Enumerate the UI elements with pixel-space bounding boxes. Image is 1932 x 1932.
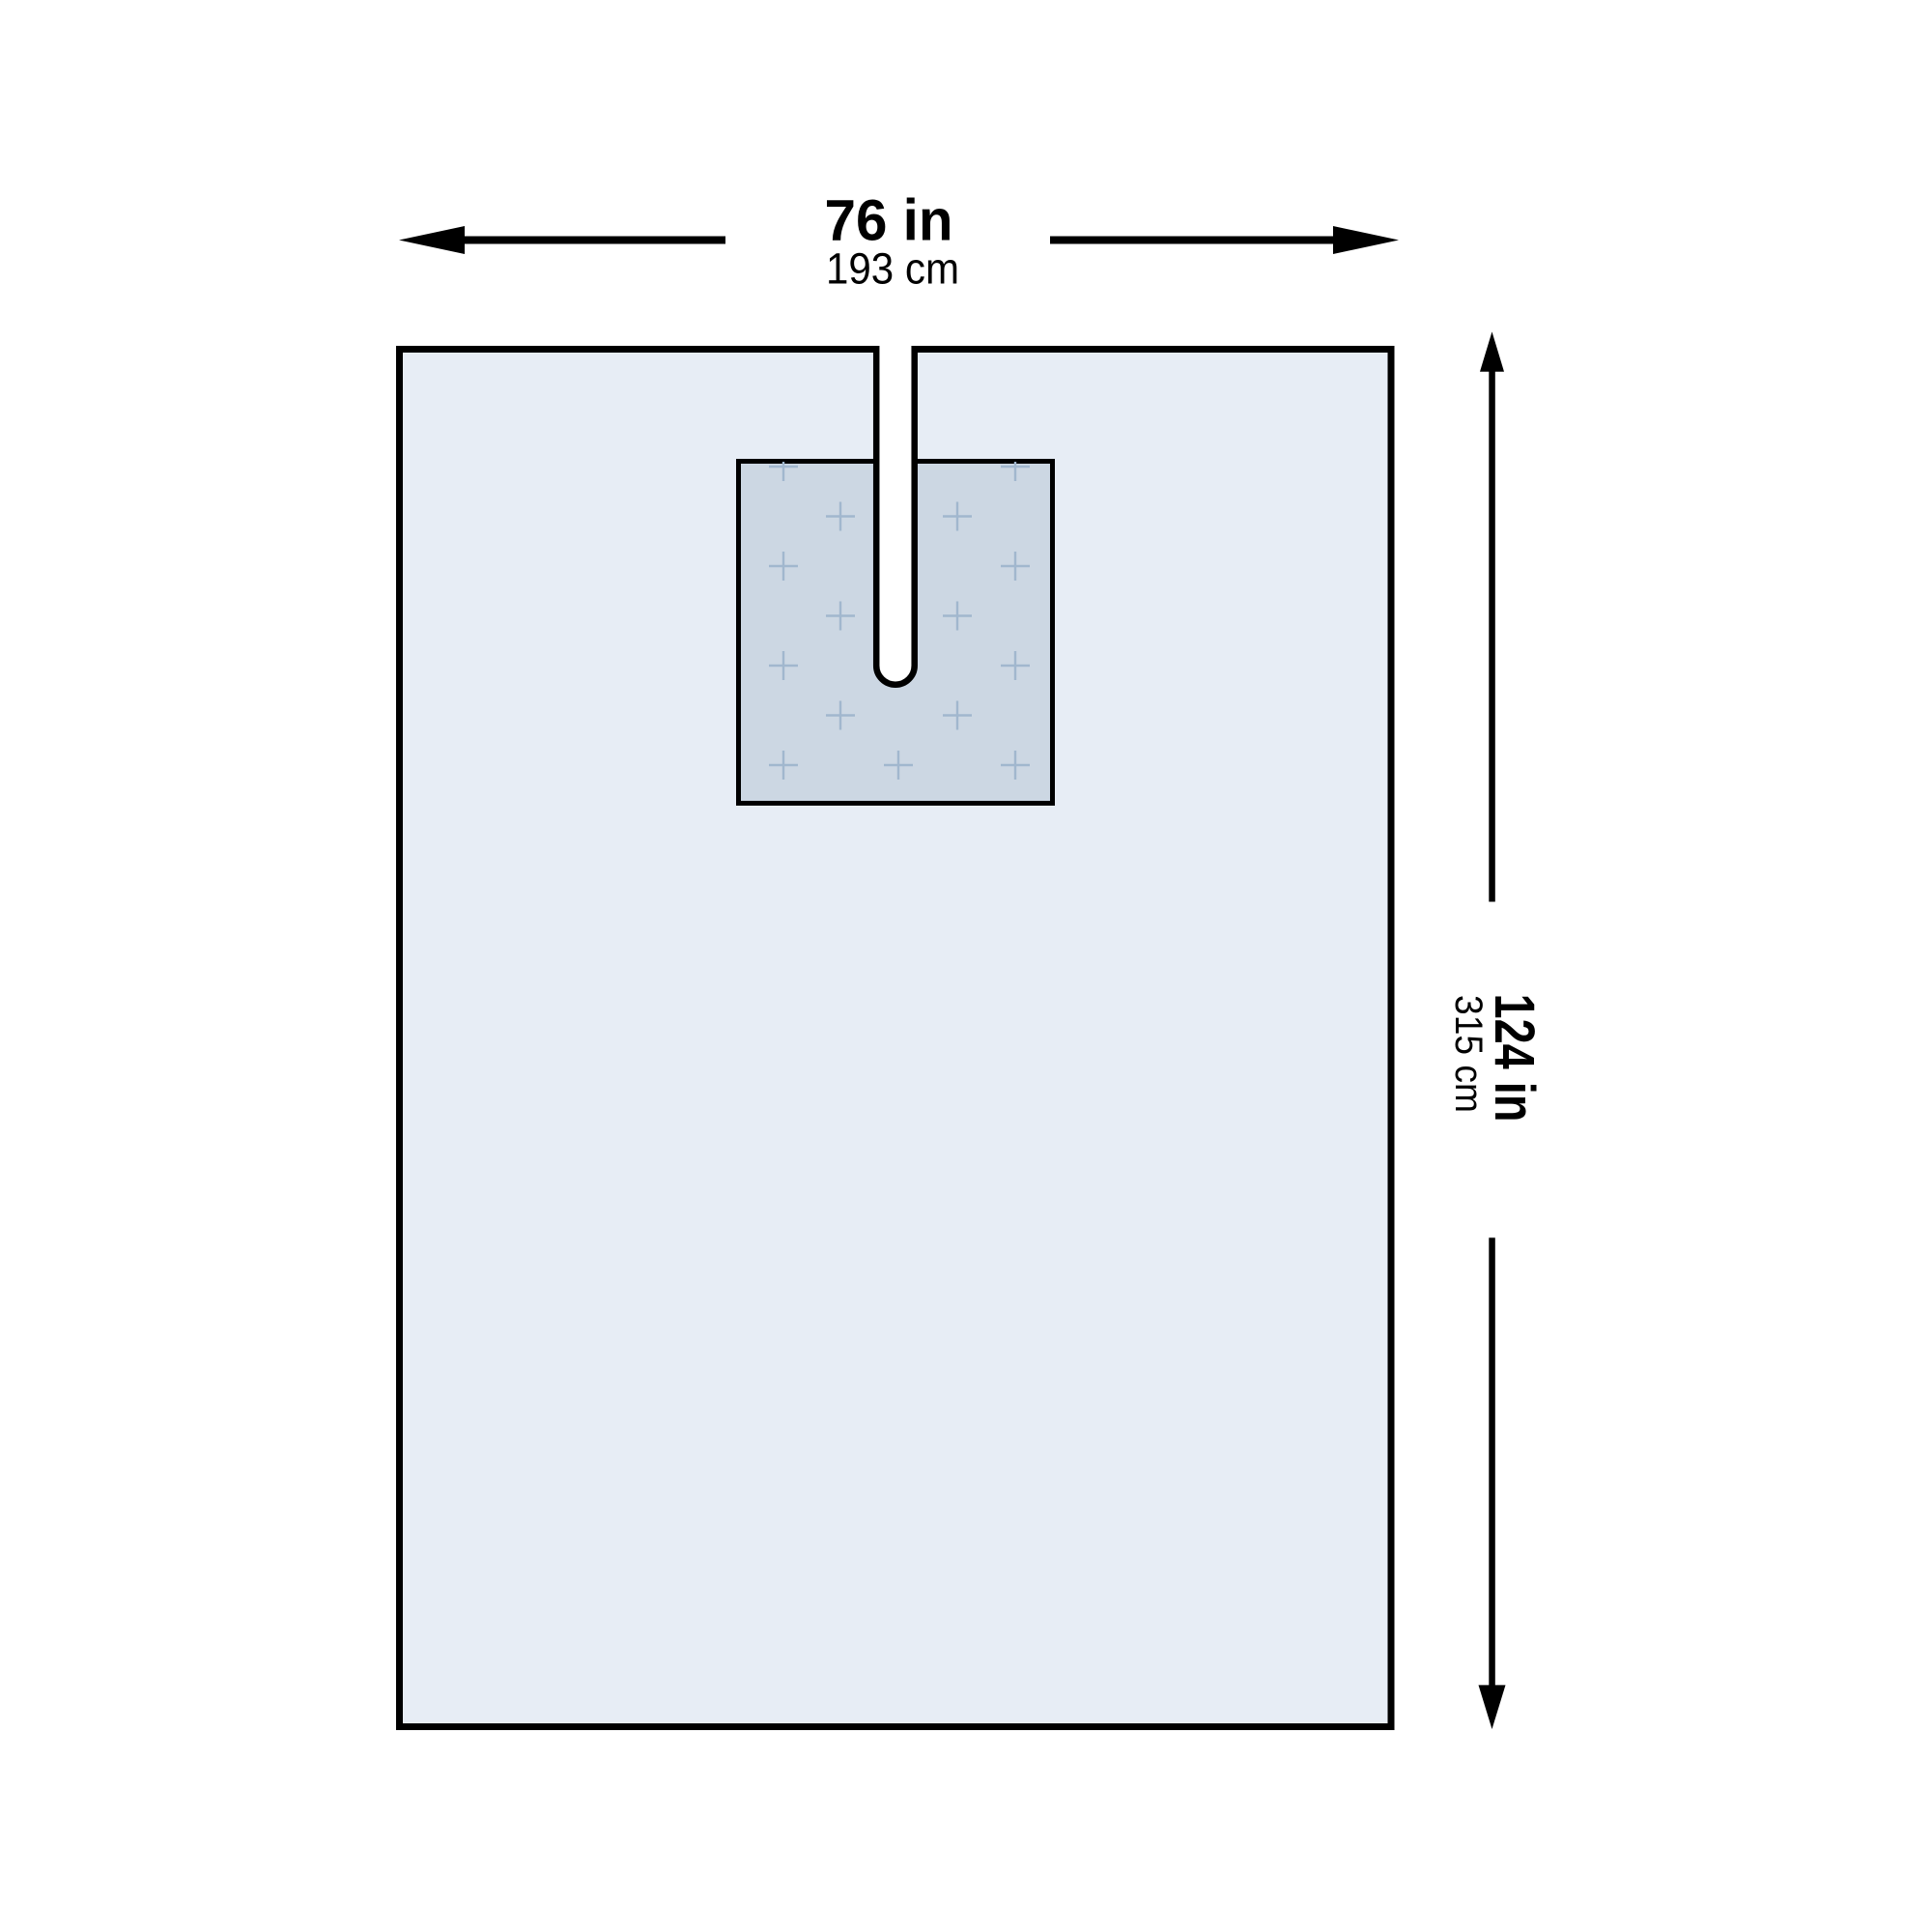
svg-text:76 in: 76 in [825,188,953,253]
svg-text:315 cm: 315 cm [1447,995,1490,1113]
svg-text:193 cm: 193 cm [826,244,959,294]
svg-text:124 in: 124 in [1483,994,1546,1122]
